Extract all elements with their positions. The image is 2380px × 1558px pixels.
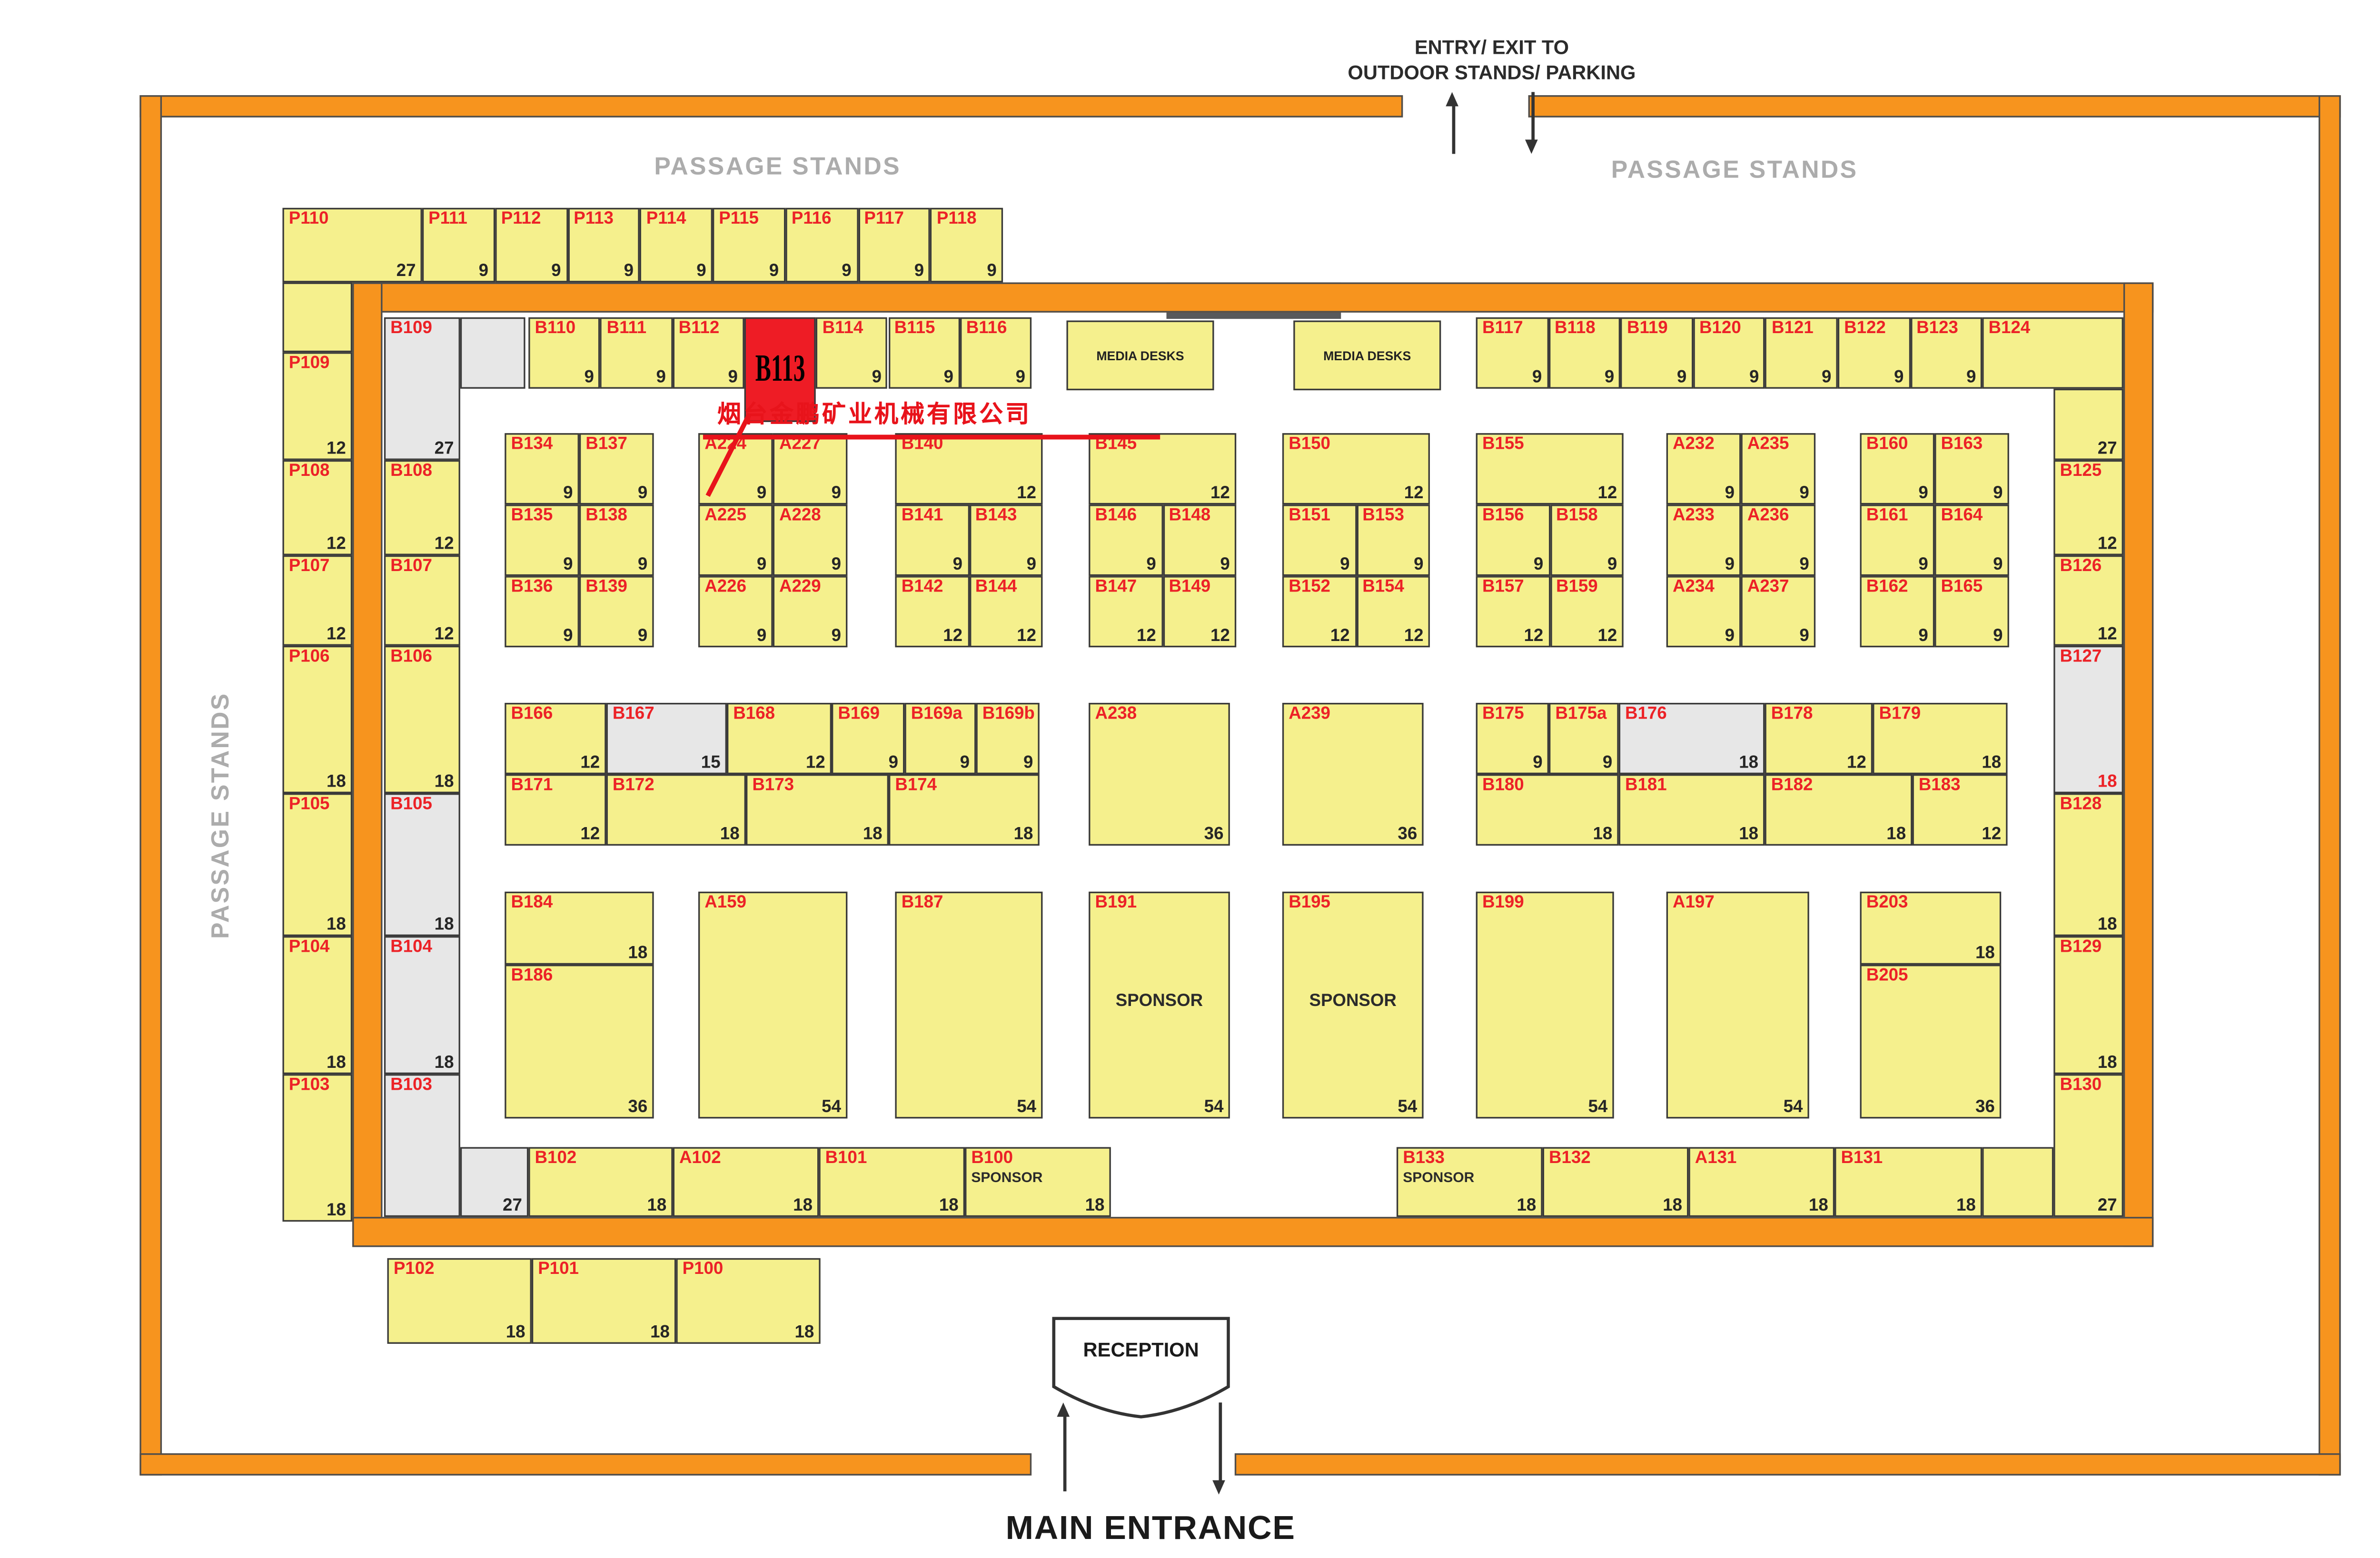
booth-label: B199 [1482, 893, 1524, 912]
booth-P113: P1139 [567, 208, 640, 283]
booth-size-number: 9 [1966, 368, 1976, 387]
booth-P112: P1129 [495, 208, 567, 283]
wall-segment [352, 282, 382, 1247]
booth-B145: B14512 [1089, 433, 1236, 504]
booth-B155: B15512 [1476, 433, 1624, 504]
booth-size-number: 9 [757, 484, 766, 503]
booth-label: B127 [2060, 647, 2102, 666]
booth-B115: B1159 [888, 317, 960, 389]
booth-label: B102 [535, 1149, 577, 1168]
booth-label: B182 [1771, 776, 1813, 795]
booth-size-number: 9 [1534, 555, 1543, 574]
booth-B130-ext [1982, 1147, 2053, 1217]
booth-label: B180 [1482, 776, 1524, 795]
booth-label: B169 [838, 704, 880, 723]
booth-size-number: 9 [1220, 555, 1230, 574]
booth-label: B179 [1879, 704, 1921, 723]
booth-label: P105 [289, 795, 330, 814]
booth-sponsor-tag: SPONSOR [1090, 992, 1228, 1011]
booth-P115: P1159 [713, 208, 785, 283]
booth-label: B167 [613, 704, 654, 723]
booth-B103: B103 [384, 1074, 460, 1217]
booth-size-number: 18 [506, 1323, 526, 1342]
booth-size-number: 18 [795, 1323, 814, 1342]
booth-label: B125 [2060, 462, 2102, 481]
booth-label: P109 [289, 354, 330, 373]
booth-size-number: 18 [939, 1196, 959, 1215]
booth-B195: B195SPONSOR54 [1282, 892, 1424, 1119]
booth-B130: B13027 [2053, 1074, 2123, 1217]
booth-size-number: 12 [1330, 627, 1350, 646]
booth-label: B154 [1362, 578, 1404, 597]
booth-B178: B17812 [1765, 703, 1873, 774]
booth-B162: B1629 [1860, 576, 1934, 647]
booth-size-number: 36 [1975, 1098, 1995, 1117]
booth-A229: A2299 [773, 576, 848, 647]
booth-label: B105 [390, 795, 432, 814]
booth-B120: B1209 [1693, 317, 1765, 389]
booth-B121: B1219 [1765, 317, 1838, 389]
booth-B107: B10712 [384, 555, 460, 646]
booth-label: P104 [289, 937, 330, 956]
booth-label: B107 [390, 557, 432, 576]
booth-size-number: 9 [757, 555, 766, 574]
booth-label: B146 [1095, 506, 1137, 525]
wall-segment [139, 95, 1403, 118]
booth-B166: B16612 [505, 703, 606, 774]
booth-size-number: 18 [2098, 773, 2117, 792]
booth-size-number: 9 [728, 368, 738, 387]
booth-size-number: 9 [584, 368, 594, 387]
booth-B147: B14712 [1089, 576, 1162, 647]
booth-size-number: 36 [628, 1098, 647, 1117]
booth-A159: A15954 [698, 892, 847, 1119]
booth-label: P117 [864, 209, 904, 228]
booth-B100: B100SPONSOR18 [965, 1147, 1111, 1217]
booth-size-number: 9 [638, 555, 647, 574]
booth-B112: B1129 [672, 317, 744, 389]
booth-B126: B12612 [2053, 555, 2123, 646]
booth-size-number: 54 [822, 1098, 841, 1117]
booth-size-number: 9 [1749, 368, 1759, 387]
booth-label: P102 [394, 1260, 435, 1279]
booth-size-number: 9 [1725, 555, 1735, 574]
booth-B108: B10812 [384, 460, 460, 555]
booth-label: B148 [1169, 506, 1210, 525]
booth-B183: B18312 [1912, 774, 2007, 846]
booth-B133: B133SPONSOR18 [1397, 1147, 1543, 1217]
booth-size-number: 9 [563, 555, 573, 574]
booth-P108: P10812 [282, 460, 352, 555]
booth-B124: B124 [1982, 317, 2123, 389]
booth-B163: B1639 [1934, 433, 2009, 504]
booth-label: B151 [1289, 506, 1330, 525]
wall-segment [139, 1453, 1031, 1476]
booth-label: B104 [390, 937, 432, 956]
booth-B187: B18754 [895, 892, 1042, 1119]
booth-size-number: 9 [1799, 484, 1809, 503]
booth-P106: P10618 [282, 646, 352, 793]
booth-size-number: 9 [832, 484, 841, 503]
booth-size-number: 18 [647, 1196, 666, 1215]
passage-stands-left: PASSAGE STANDS [208, 633, 237, 998]
booth-label: B183 [1919, 776, 1961, 795]
booth-label: B135 [511, 506, 553, 525]
booth-size-number: 12 [1598, 484, 1617, 503]
booth-label: P110 [289, 209, 329, 228]
booth-size-number: 9 [1799, 555, 1809, 574]
booth-label: A239 [1289, 704, 1330, 723]
booth-size-number: 9 [1822, 368, 1831, 387]
booth-size-number: 9 [960, 754, 970, 773]
booth-size-number: 9 [1918, 484, 1928, 503]
booth-P109: P10912 [282, 352, 352, 460]
booth-size-number: 9 [889, 754, 898, 773]
main-entrance-label: MAIN ENTRANCE [944, 1510, 1357, 1548]
booth-A228: A2289 [773, 504, 848, 576]
booth-P107: P10712 [282, 555, 352, 646]
booth-B151: B1519 [1282, 504, 1356, 576]
booth-size-number: 12 [1210, 627, 1230, 646]
booth-label: B103 [390, 1075, 432, 1095]
reception-label: RECEPTION [1052, 1339, 1230, 1361]
booth-label: P107 [289, 557, 330, 576]
booth-label: B112 [679, 319, 720, 338]
booth-label: B111 [607, 319, 647, 338]
booth-label: B178 [1771, 704, 1813, 723]
booth-B114: B1149 [816, 317, 888, 389]
booth-A239: A23936 [1282, 703, 1424, 846]
booth-label: B118 [1555, 319, 1596, 338]
booth-B150: B15012 [1282, 433, 1430, 504]
booth-label: B117 [1482, 319, 1523, 338]
booth-label: B122 [1844, 319, 1886, 338]
booth-B124-ext: 27 [2053, 389, 2123, 460]
booth-B137: B1379 [579, 433, 654, 504]
booth-B136: B1369 [505, 576, 579, 647]
booth-label: B161 [1866, 506, 1908, 525]
booth-label: P108 [289, 462, 330, 481]
booth-label: B121 [1772, 319, 1814, 338]
passage-stands-top-left: PASSAGE STANDS [603, 154, 952, 182]
booth-label: A232 [1673, 435, 1715, 454]
floorplan: EMERGENCY EXIT RECEPTION P11027P1119P112… [0, 0, 2380, 1558]
booth-B105: B10518 [384, 793, 460, 936]
booth-label: B132 [1549, 1149, 1591, 1168]
booth-label: B160 [1866, 435, 1908, 454]
booth-size-number: 18 [1982, 754, 2001, 773]
booth-label: B119 [1627, 319, 1668, 338]
booth-size-number: 9 [842, 262, 851, 281]
booth-label: B187 [902, 893, 943, 912]
booth-label: B155 [1482, 435, 1524, 454]
booth-label: B163 [1941, 435, 1983, 454]
booth-size-number: 18 [435, 1054, 454, 1073]
booth-size-number: 9 [1414, 555, 1423, 574]
booth-label: A197 [1673, 893, 1715, 912]
booth-P105: P10518 [282, 793, 352, 936]
booth-A236: A2369 [1741, 504, 1815, 576]
entrance-arrow-up [1057, 1402, 1071, 1491]
booth-B140: B14012 [895, 433, 1042, 504]
booth-B122: B1229 [1838, 317, 1910, 389]
booth-size-number: 12 [806, 754, 825, 773]
booth-size-number: 12 [1137, 627, 1156, 646]
booth-size-number: 9 [1027, 555, 1036, 574]
wall-segment [2123, 282, 2153, 1247]
passage-stands-top-right: PASSAGE STANDS [1560, 157, 1909, 186]
booth-size-number: 54 [1784, 1098, 1803, 1117]
booth-A234: A2349 [1666, 576, 1741, 647]
booth-B156: B1569 [1476, 504, 1550, 576]
booth-B146: B1469 [1089, 504, 1162, 576]
booth-B103-ext: 27 [460, 1147, 528, 1217]
entry-exit-line1: ENTRY/ EXIT TO [1317, 37, 1666, 59]
booth-size-number: 27 [397, 262, 416, 281]
booth-size-number: 9 [563, 484, 573, 503]
booth-label: P114 [646, 209, 686, 228]
booth-size-number: 54 [1588, 1098, 1608, 1117]
booth-label: B138 [585, 506, 627, 525]
booth-label: B186 [511, 966, 553, 985]
booth-B173: B17318 [746, 774, 889, 846]
booth-label: B115 [894, 319, 935, 338]
wall-segment [139, 95, 162, 1476]
booth-B164: B1649 [1934, 504, 2009, 576]
booth-size-number: 9 [1799, 627, 1809, 646]
booth-size-number: 9 [1532, 368, 1542, 387]
booth-B110: B1109 [528, 317, 600, 389]
booth-B109-ext [460, 317, 526, 389]
booth-size-number: 9 [914, 262, 924, 281]
booth-size-number: 18 [327, 1201, 346, 1220]
booth-B205: B20536 [1860, 965, 2001, 1118]
booth-A225: A2259 [698, 504, 773, 576]
booth-size-number: 12 [1210, 484, 1230, 503]
booth-A226: A2269 [698, 576, 773, 647]
booth-size-number: 9 [944, 368, 953, 387]
booth-label: P118 [937, 209, 977, 228]
booth-B160: B1609 [1860, 433, 1934, 504]
booth-label: B123 [1916, 319, 1958, 338]
booth-B139: B1399 [579, 576, 654, 647]
booth-label: B139 [585, 578, 627, 597]
booth-size-number: 9 [563, 627, 573, 646]
booth-label: B137 [585, 435, 627, 454]
booth-sponsor-tag: SPONSOR [971, 1169, 1042, 1185]
booth-B158: B1589 [1550, 504, 1624, 576]
booth-size-number: 18 [1739, 754, 1758, 773]
booth-size-number: 9 [1016, 368, 1025, 387]
booth-size-number: 18 [1517, 1196, 1536, 1215]
booth-B111: B1119 [600, 317, 672, 389]
booth-label: B106 [390, 647, 432, 666]
wall-segment [352, 1217, 2153, 1247]
booth-label: B156 [1482, 506, 1524, 525]
booth-label: B169a [911, 704, 962, 723]
booth-B174: B17418 [889, 774, 1040, 846]
booth-label: B100 [971, 1149, 1013, 1168]
booth-label: B168 [733, 704, 775, 723]
booth-label: B181 [1625, 776, 1667, 795]
booth-size-number: 12 [435, 625, 454, 644]
booth-B131: B13118 [1835, 1147, 1982, 1217]
booth-size-number: 18 [435, 916, 454, 935]
booth-B128: B12818 [2053, 793, 2123, 936]
booth-B186: B18636 [505, 965, 654, 1118]
booth-size-number: 9 [769, 262, 779, 281]
booth-B149: B14912 [1162, 576, 1236, 647]
booth-label: B150 [1289, 435, 1330, 454]
booth-B148: B1489 [1162, 504, 1236, 576]
booth-A235: A2359 [1741, 433, 1815, 504]
wall-segment [2319, 95, 2341, 1476]
booth-size-number: 9 [1725, 484, 1735, 503]
booth-P116: P1169 [785, 208, 858, 283]
booth-size-number: 9 [624, 262, 634, 281]
booth-P100: P10018 [676, 1258, 820, 1344]
booth-P111: P1119 [422, 208, 495, 283]
booth-B171: B17112 [505, 774, 606, 846]
booth-label: B203 [1866, 893, 1908, 912]
booth-size-number: 9 [1918, 627, 1928, 646]
booth-B168: B16812 [727, 703, 832, 774]
booth-A197: A19754 [1666, 892, 1809, 1119]
booth-size-number: 9 [1603, 754, 1612, 773]
booth-label: B159 [1556, 578, 1598, 597]
booth-size-number: 9 [1918, 555, 1928, 574]
booth-size-number: 12 [327, 535, 346, 554]
booth-size-number: 18 [1975, 944, 1995, 963]
booth-label: A233 [1673, 506, 1715, 525]
booth-label: B141 [902, 506, 943, 525]
booth-label: B108 [390, 462, 432, 481]
booth-B154: B15412 [1356, 576, 1430, 647]
booth-size-number: 12 [1404, 484, 1424, 503]
booth-size-number: 9 [757, 627, 766, 646]
booth-size-number: 12 [1847, 754, 1866, 773]
booth-A131: A13118 [1688, 1147, 1835, 1217]
booth-size-number: 9 [1146, 555, 1156, 574]
booth-label: P116 [792, 209, 832, 228]
booth-B167: B16715 [606, 703, 727, 774]
booth-size-number: 9 [1605, 368, 1614, 387]
booth-size-number: 18 [628, 944, 647, 963]
booth-size-number: 9 [638, 627, 647, 646]
booth-size-number: 9 [1023, 754, 1033, 773]
booth-size-number: 12 [1982, 825, 2001, 844]
booth-size-number: 9 [1993, 555, 2003, 574]
booth-size-number: 9 [696, 262, 706, 281]
booth-P110-ext [282, 282, 352, 352]
booth-size-number: 27 [2098, 440, 2117, 459]
booth-B175a: B175a9 [1549, 703, 1619, 774]
booth-size-number: 12 [580, 754, 600, 773]
wall-segment [1235, 1453, 2341, 1476]
booth-B123: B1239 [1910, 317, 1983, 389]
booth-label: B144 [975, 578, 1017, 597]
booth-size-number: 54 [1017, 1098, 1036, 1117]
media-desks-left: MEDIA DESKS [1066, 320, 1214, 390]
booth-size-number: 27 [2098, 1196, 2117, 1215]
booth-label: A225 [704, 506, 746, 525]
reception-booth: RECEPTION [1052, 1317, 1230, 1421]
booth-size-number: 12 [435, 535, 454, 554]
booth-label: B134 [511, 435, 553, 454]
booth-label: MEDIA DESKS [1295, 322, 1439, 389]
booth-size-number: 18 [650, 1323, 670, 1342]
booth-B169: B1699 [832, 703, 904, 774]
booth-label: B143 [975, 506, 1017, 525]
booth-B182: B18218 [1765, 774, 1912, 846]
booth-B109: B10927 [384, 317, 460, 460]
booth-label: P103 [289, 1075, 330, 1095]
booth-B106: B10618 [384, 646, 460, 793]
booth-size-number: 18 [2098, 916, 2117, 935]
booth-label: B176 [1625, 704, 1667, 723]
booth-size-number: 12 [2098, 625, 2117, 644]
booth-P117: P1179 [858, 208, 931, 283]
booth-label: A226 [704, 578, 746, 597]
booth-size-number: 9 [638, 484, 647, 503]
entry-arrow-down [1525, 92, 1539, 154]
booth-size-number: 9 [1725, 627, 1735, 646]
wall-segment [1528, 95, 2341, 118]
booth-B142: B14212 [895, 576, 969, 647]
booth-sponsor-tag: SPONSOR [1284, 992, 1422, 1011]
booth-label: A236 [1747, 506, 1789, 525]
booth-size-number: 9 [987, 262, 996, 281]
booth-size-number: 54 [1398, 1098, 1417, 1117]
booth-size-number: 15 [701, 754, 721, 773]
booth-B169b: B169b9 [976, 703, 1039, 774]
booth-B180: B18018 [1476, 774, 1619, 846]
booth-size-number: 18 [863, 825, 883, 844]
booth-label: B110 [535, 319, 576, 338]
booth-label: P106 [289, 647, 330, 666]
booth-size-number: 18 [1014, 825, 1033, 844]
booth-label: B158 [1556, 506, 1598, 525]
booth-size-number: 18 [2098, 1054, 2117, 1073]
booth-size-number: 12 [1017, 484, 1036, 503]
booth-size-number: 9 [1993, 484, 2003, 503]
booth-label: B205 [1866, 966, 1908, 985]
booth-B101: B10118 [819, 1147, 965, 1217]
booth-size-number: 9 [1340, 555, 1349, 574]
booth-B125: B12512 [2053, 460, 2123, 555]
booth-label: B101 [825, 1149, 867, 1168]
booth-label: P101 [538, 1260, 579, 1279]
booth-B104: B10418 [384, 936, 460, 1074]
booth-label: B157 [1482, 578, 1524, 597]
booth-label: B129 [2060, 937, 2102, 956]
media-desks-right: MEDIA DESKS [1293, 320, 1441, 390]
booth-A102: A10218 [673, 1147, 819, 1217]
booth-label: B164 [1941, 506, 1983, 525]
booth-B153: B1539 [1356, 504, 1430, 576]
booth-B203: B20318 [1860, 892, 2001, 965]
booth-P102: P10218 [387, 1258, 531, 1344]
booth-size-number: 12 [1017, 627, 1036, 646]
booth-label: B175 [1482, 704, 1524, 723]
booth-label: P112 [501, 209, 541, 228]
booth-size-number: 12 [327, 625, 346, 644]
booth-size-number: 27 [503, 1196, 522, 1215]
booth-B175: B1759 [1476, 703, 1549, 774]
booth-B132: B13218 [1543, 1147, 1689, 1217]
booth-label: B175a [1555, 704, 1606, 723]
booth-label: B114 [823, 319, 863, 338]
